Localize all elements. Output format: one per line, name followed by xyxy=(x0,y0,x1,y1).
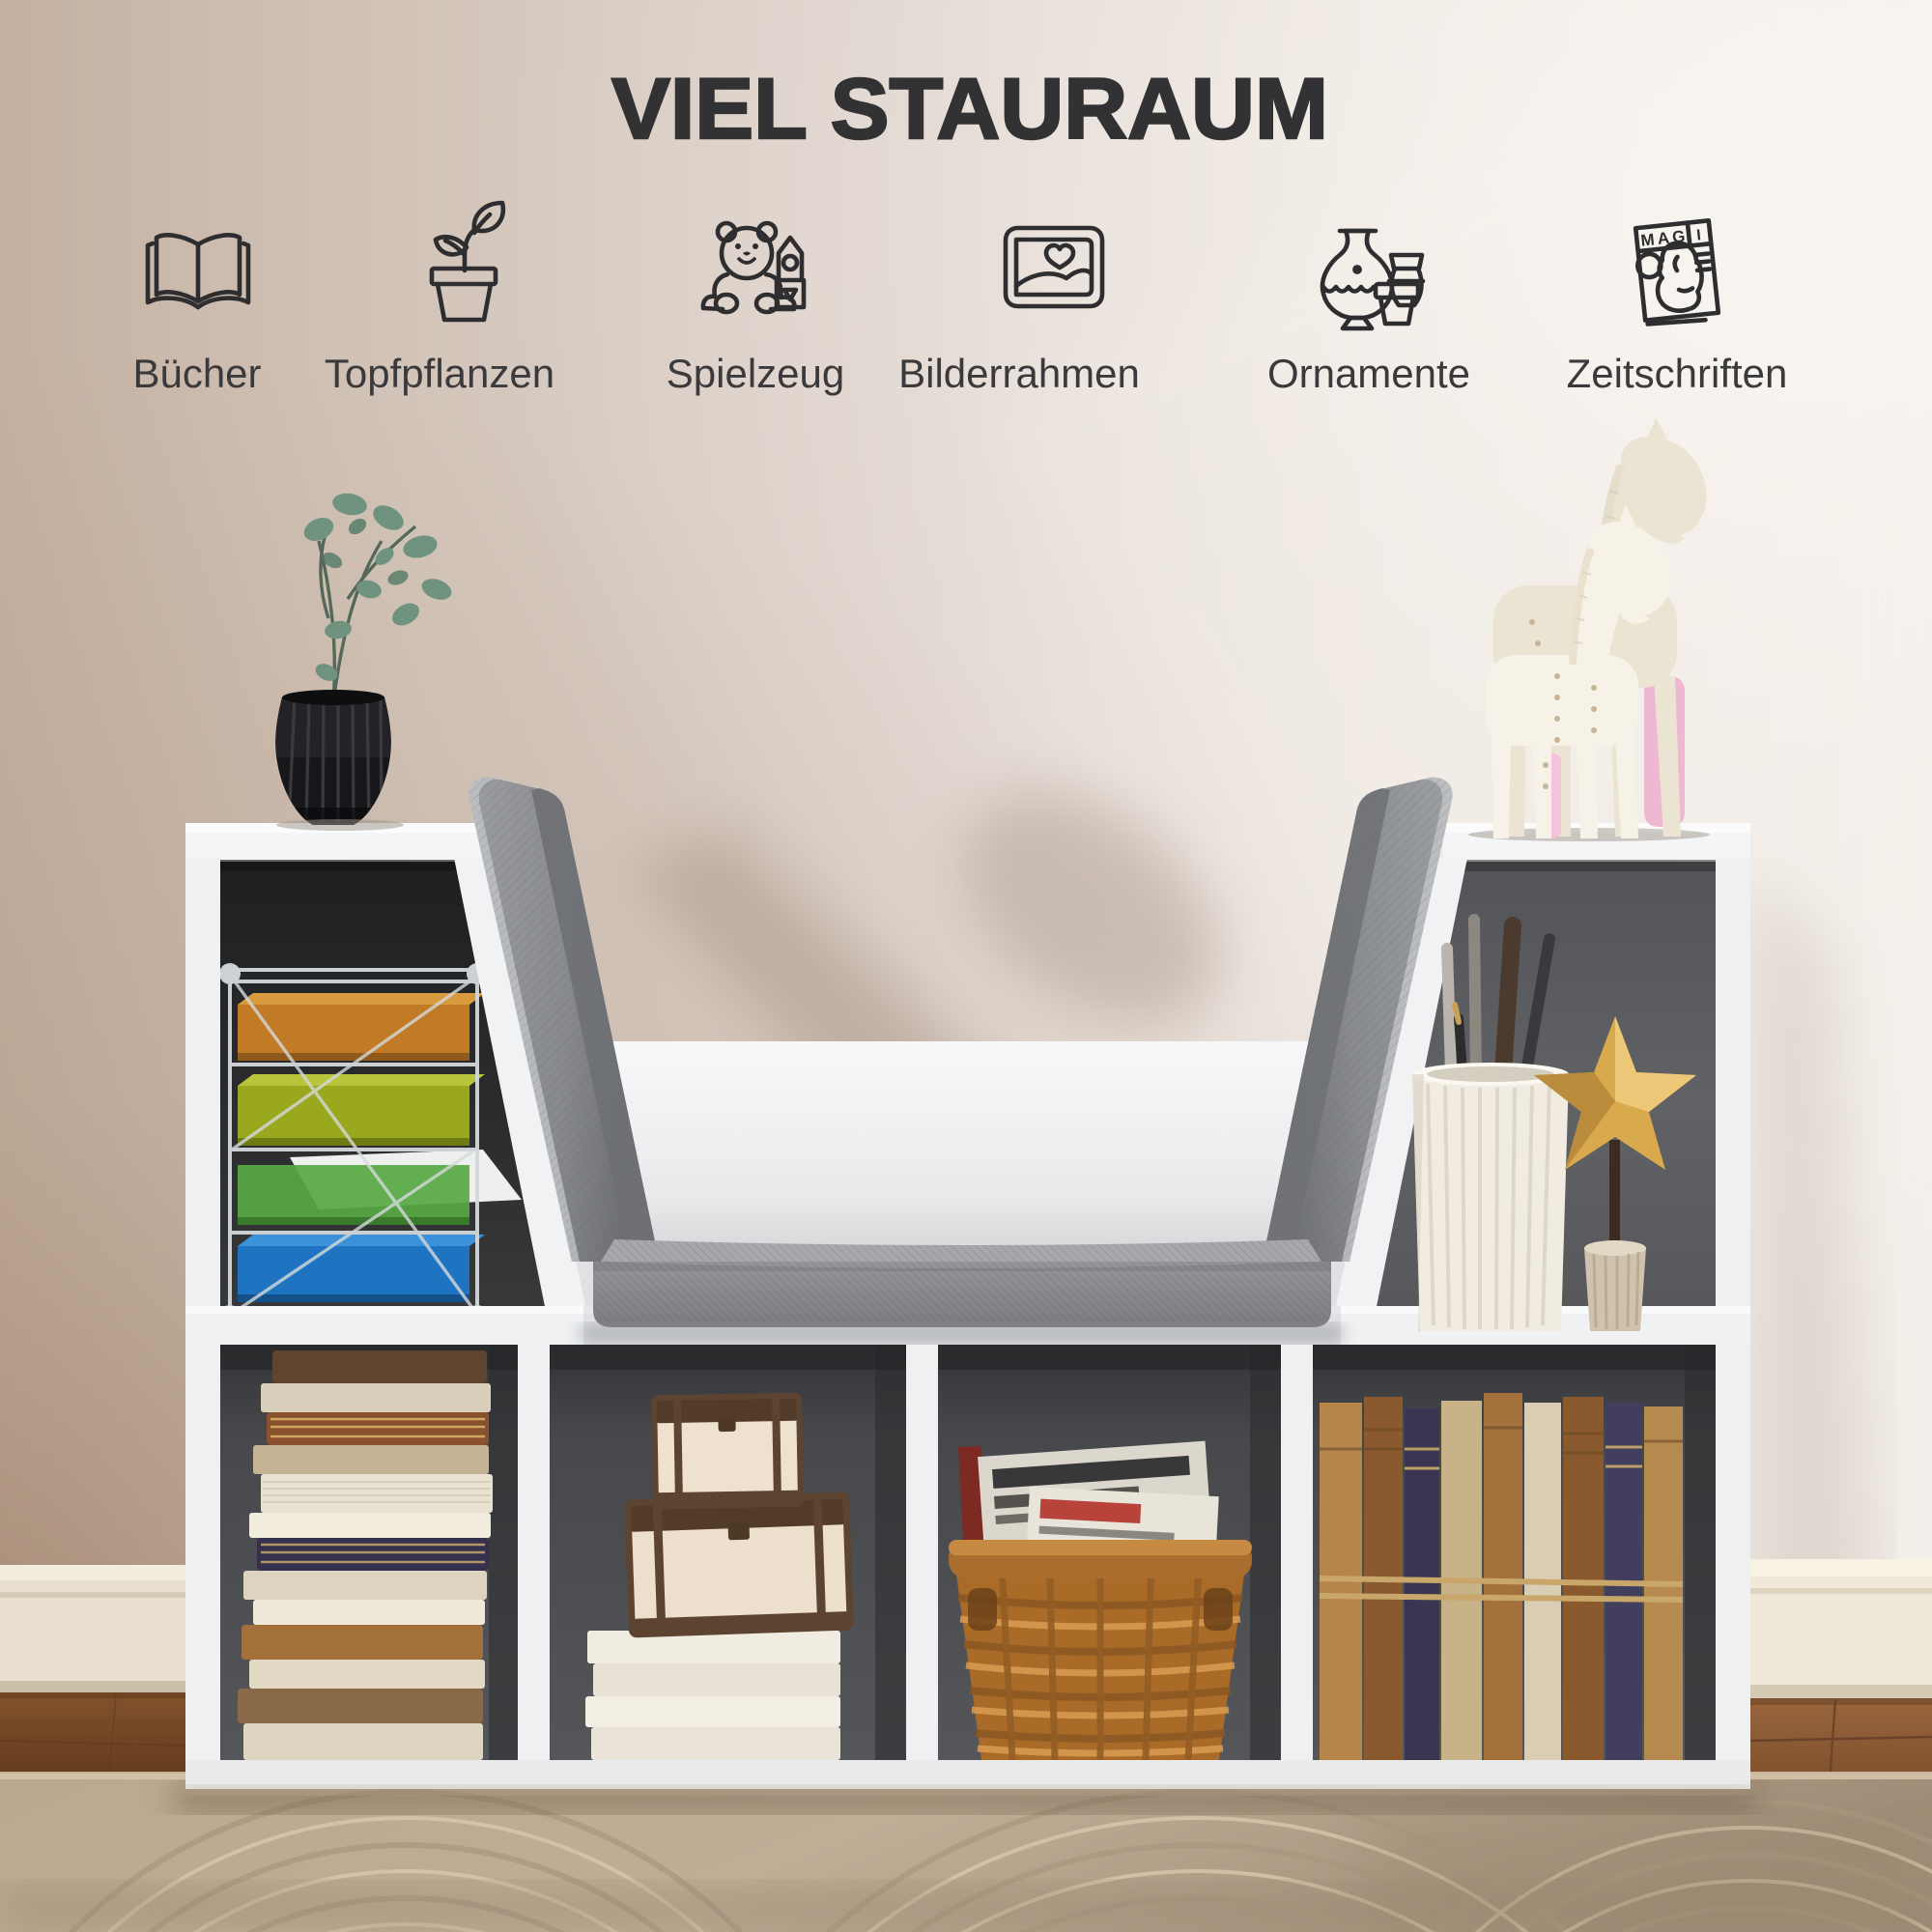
svg-text:Bücher: Bücher xyxy=(132,351,261,396)
svg-text:Zeitschriften: Zeitschriften xyxy=(1567,351,1788,396)
svg-text:Topfpflanzen: Topfpflanzen xyxy=(325,351,554,396)
svg-text:VIEL STAURAUM: VIEL STAURAUM xyxy=(611,60,1328,156)
svg-text:Ornamente: Ornamente xyxy=(1267,351,1470,396)
svg-text:Spielzeug: Spielzeug xyxy=(667,351,844,396)
svg-text:Bilderrahmen: Bilderrahmen xyxy=(898,351,1140,396)
